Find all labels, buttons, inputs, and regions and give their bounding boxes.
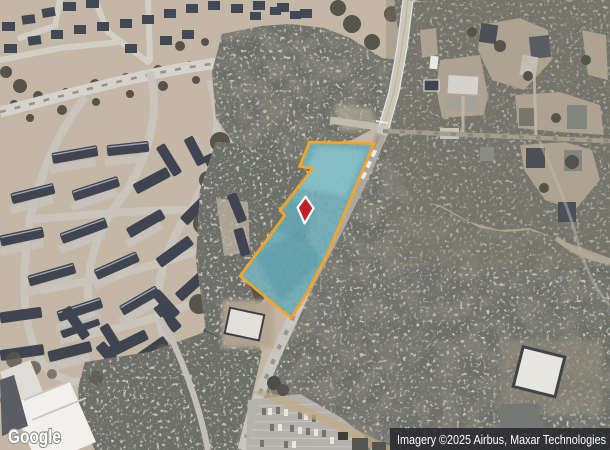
svg-text:Imagery ©2025 Airbus, Maxar Te: Imagery ©2025 Airbus, Maxar Technologies [397,432,606,447]
svg-text:Google: Google [8,426,61,448]
